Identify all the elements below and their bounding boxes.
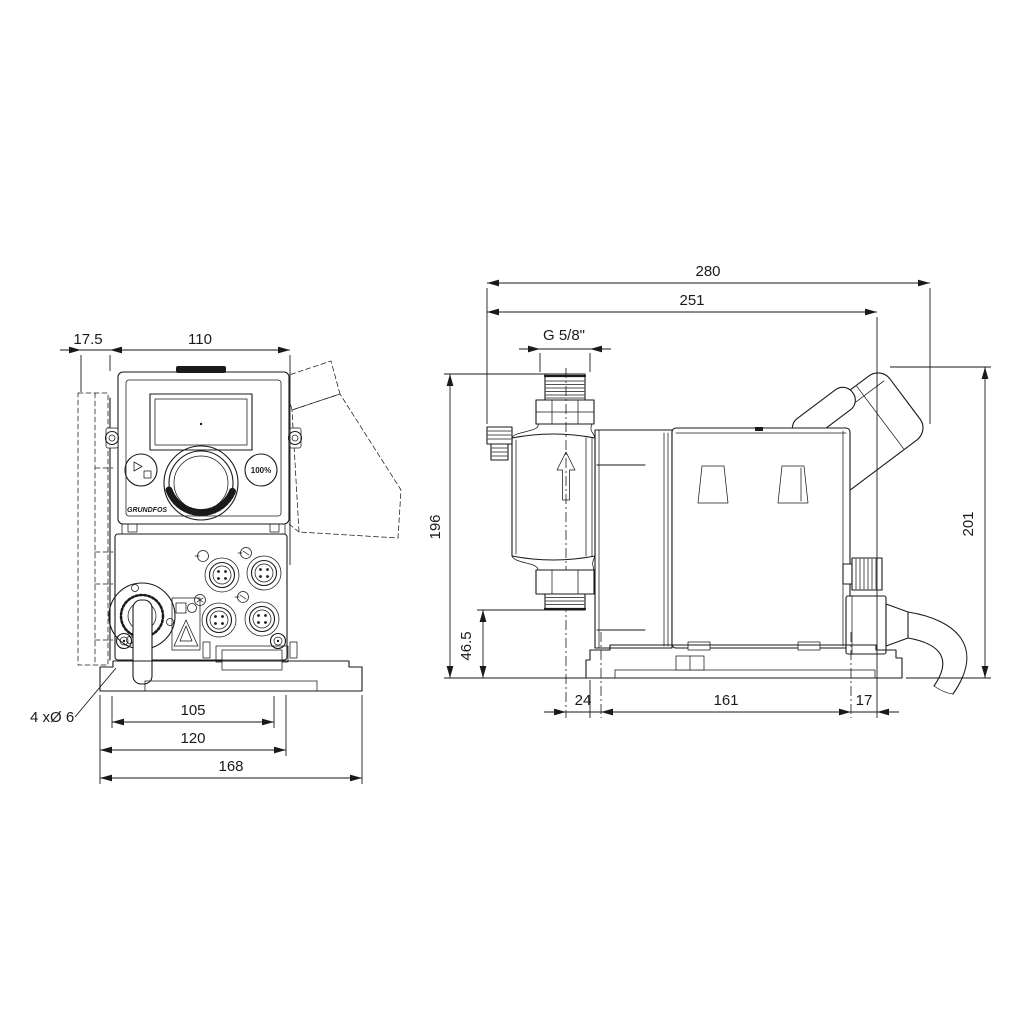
dim-overall-height: 201	[960, 511, 977, 536]
mount-hook-rear	[778, 466, 808, 503]
drawing-svg: 100% GRUNDFOS	[0, 0, 1024, 1024]
suction-connection	[512, 556, 595, 610]
motor-housing	[672, 427, 850, 650]
dim-height-to-discharge: 196	[427, 514, 444, 539]
dim-depth-to-cable-gland: 251	[679, 292, 704, 309]
deaeration-knob	[487, 427, 512, 460]
cable-plug	[886, 604, 908, 646]
control-panel-housing: 100% GRUNDFOS	[106, 366, 302, 534]
adapter-flange-section	[595, 430, 672, 648]
mounting-holes-note: 4 xØ 6	[30, 709, 74, 726]
dim-slot-spacing: 105	[180, 702, 205, 719]
cable-tube	[133, 600, 152, 684]
dim-base-rear-offset: 17	[856, 692, 873, 709]
dim-overall-depth: 280	[695, 263, 720, 280]
dim-connection-thread: G 5/8"	[543, 327, 585, 344]
control-cube-ghost-outline	[283, 361, 401, 538]
discharge-connection	[536, 374, 594, 424]
right-ear-screw	[289, 428, 302, 448]
left-ear-screw	[106, 428, 119, 448]
mount-hook-front	[698, 466, 728, 503]
dim-baseplate-width: 168	[218, 758, 243, 775]
front-view: 100% GRUNDFOS	[30, 331, 401, 784]
dim-plate-width: 120	[180, 730, 205, 747]
side-base-plate	[586, 632, 902, 718]
dim-housing-width: 110	[188, 331, 212, 348]
dim-suction-valve-height: 46.5	[458, 631, 475, 660]
top-tab	[176, 366, 226, 373]
power-cable	[908, 612, 967, 694]
holes-leader-line	[75, 668, 116, 717]
side-view: 280 251 G 5/8" 196 46.5 201	[427, 263, 991, 718]
dosing-head	[487, 368, 595, 718]
dim-mounting-hole-spacing: 161	[713, 692, 738, 709]
dosing-pump-dimensional-drawing: 100% GRUNDFOS	[0, 0, 1024, 1024]
percent-button-label: 100%	[251, 466, 271, 475]
dim-base-front-offset: 24	[575, 692, 592, 709]
brand-logo: GRUNDFOS	[127, 507, 167, 514]
dim-wall-offset: 17.5	[73, 331, 102, 348]
